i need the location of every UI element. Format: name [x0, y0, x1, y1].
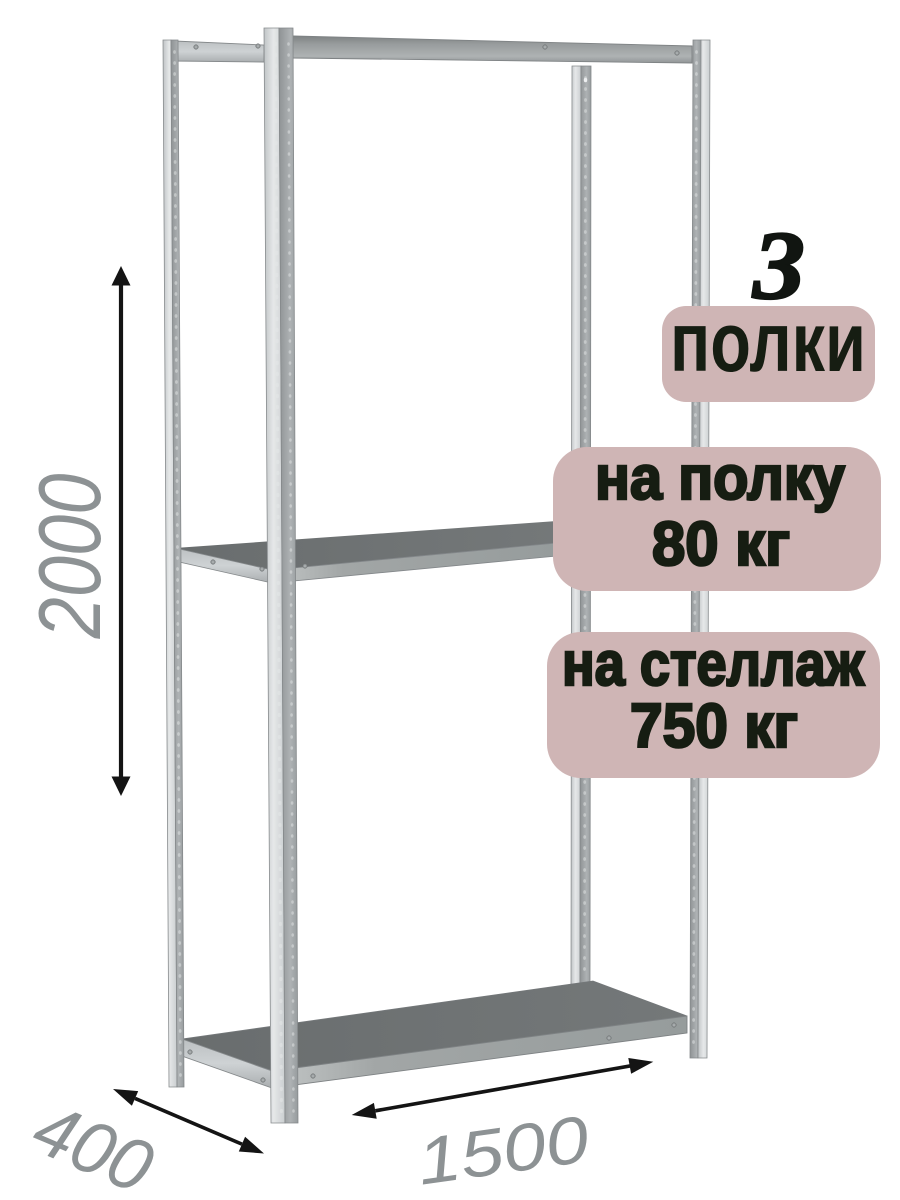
svg-text:1500: 1500	[413, 1101, 594, 1198]
svg-text:80 кг: 80 кг	[652, 510, 790, 579]
svg-text:750 кг: 750 кг	[630, 692, 798, 761]
svg-text:2000: 2000	[20, 473, 119, 639]
svg-text:на полку: на полку	[595, 444, 845, 513]
svg-text:полки: полки	[670, 295, 866, 389]
svg-text:на стеллаж: на стеллаж	[562, 630, 865, 699]
